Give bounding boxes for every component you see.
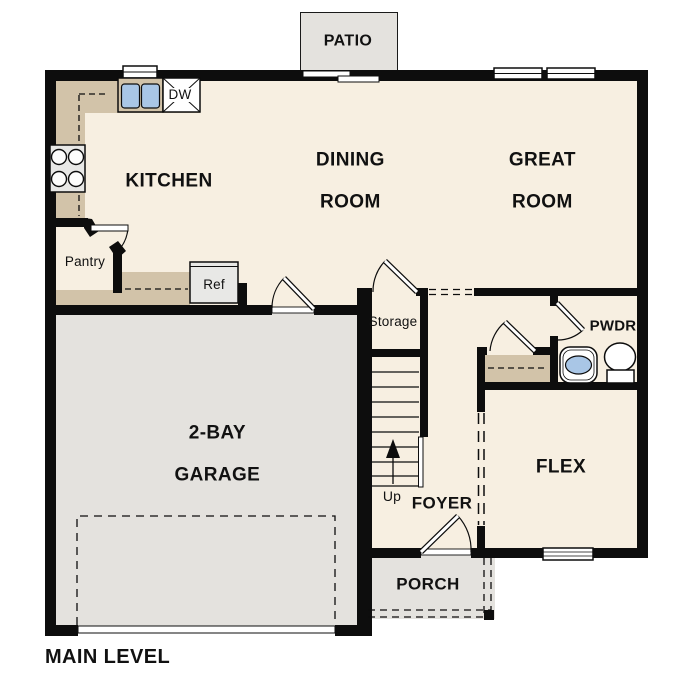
wall-garage-bottom-a bbox=[45, 625, 78, 636]
wall-hall-closet-left bbox=[477, 347, 485, 412]
cabinet-below-pantry bbox=[55, 290, 122, 305]
great-line1: GREAT bbox=[509, 150, 576, 171]
wall-ref-stub bbox=[238, 283, 247, 307]
wall-top bbox=[45, 70, 648, 81]
wall-storage-bottom bbox=[371, 349, 428, 357]
wall-closet-top-b bbox=[533, 347, 550, 355]
kitchen-counter-left bbox=[55, 113, 85, 218]
floor-plan: PATIO KITCHEN DINING ROOM GREAT ROOM 2-B… bbox=[0, 0, 687, 687]
wall-pwdr-closet-bottom bbox=[477, 382, 648, 390]
wall-garage-bottom-b bbox=[335, 625, 363, 636]
wall-pwdr-jamb bbox=[550, 296, 558, 306]
wall-garage-right bbox=[357, 288, 372, 636]
plan-title: MAIN LEVEL bbox=[45, 646, 170, 669]
wall-right bbox=[637, 70, 648, 558]
wall-front-a bbox=[363, 548, 421, 558]
porch-label: PORCH bbox=[396, 574, 459, 595]
dining-line1: DINING bbox=[316, 150, 385, 171]
coat-closet-shelf bbox=[485, 355, 550, 382]
wall-pantry-right bbox=[113, 248, 122, 293]
great-room-label: GREAT ROOM bbox=[486, 129, 576, 234]
great-line2: ROOM bbox=[512, 192, 573, 213]
ref-label: Ref bbox=[203, 278, 225, 292]
flex-label: FLEX bbox=[536, 457, 586, 478]
storage-label: Storage bbox=[369, 315, 418, 329]
wall-pantry-top bbox=[45, 218, 88, 227]
wall-front-b bbox=[471, 548, 648, 558]
dw-label: DW bbox=[168, 88, 193, 102]
dining-line2: ROOM bbox=[320, 192, 381, 213]
foyer-label: FOYER bbox=[412, 493, 473, 514]
dining-room-label: DINING ROOM bbox=[293, 129, 385, 234]
patio-label: PATIO bbox=[324, 31, 373, 52]
counter-by-refrigerator bbox=[122, 272, 190, 305]
garage-line2: GARAGE bbox=[174, 465, 260, 486]
pwdr-label: PWDR bbox=[590, 316, 637, 337]
pantry-label: Pantry bbox=[65, 255, 105, 269]
kitchen-label: KITCHEN bbox=[125, 171, 212, 192]
up-label: Up bbox=[383, 489, 401, 503]
garage-line1: 2-BAY bbox=[189, 423, 246, 444]
wall-stairs-right bbox=[420, 288, 428, 437]
wall-left bbox=[45, 70, 56, 636]
garage-label: 2-BAY GARAGE bbox=[152, 402, 261, 507]
wall-hall-top bbox=[474, 288, 648, 296]
